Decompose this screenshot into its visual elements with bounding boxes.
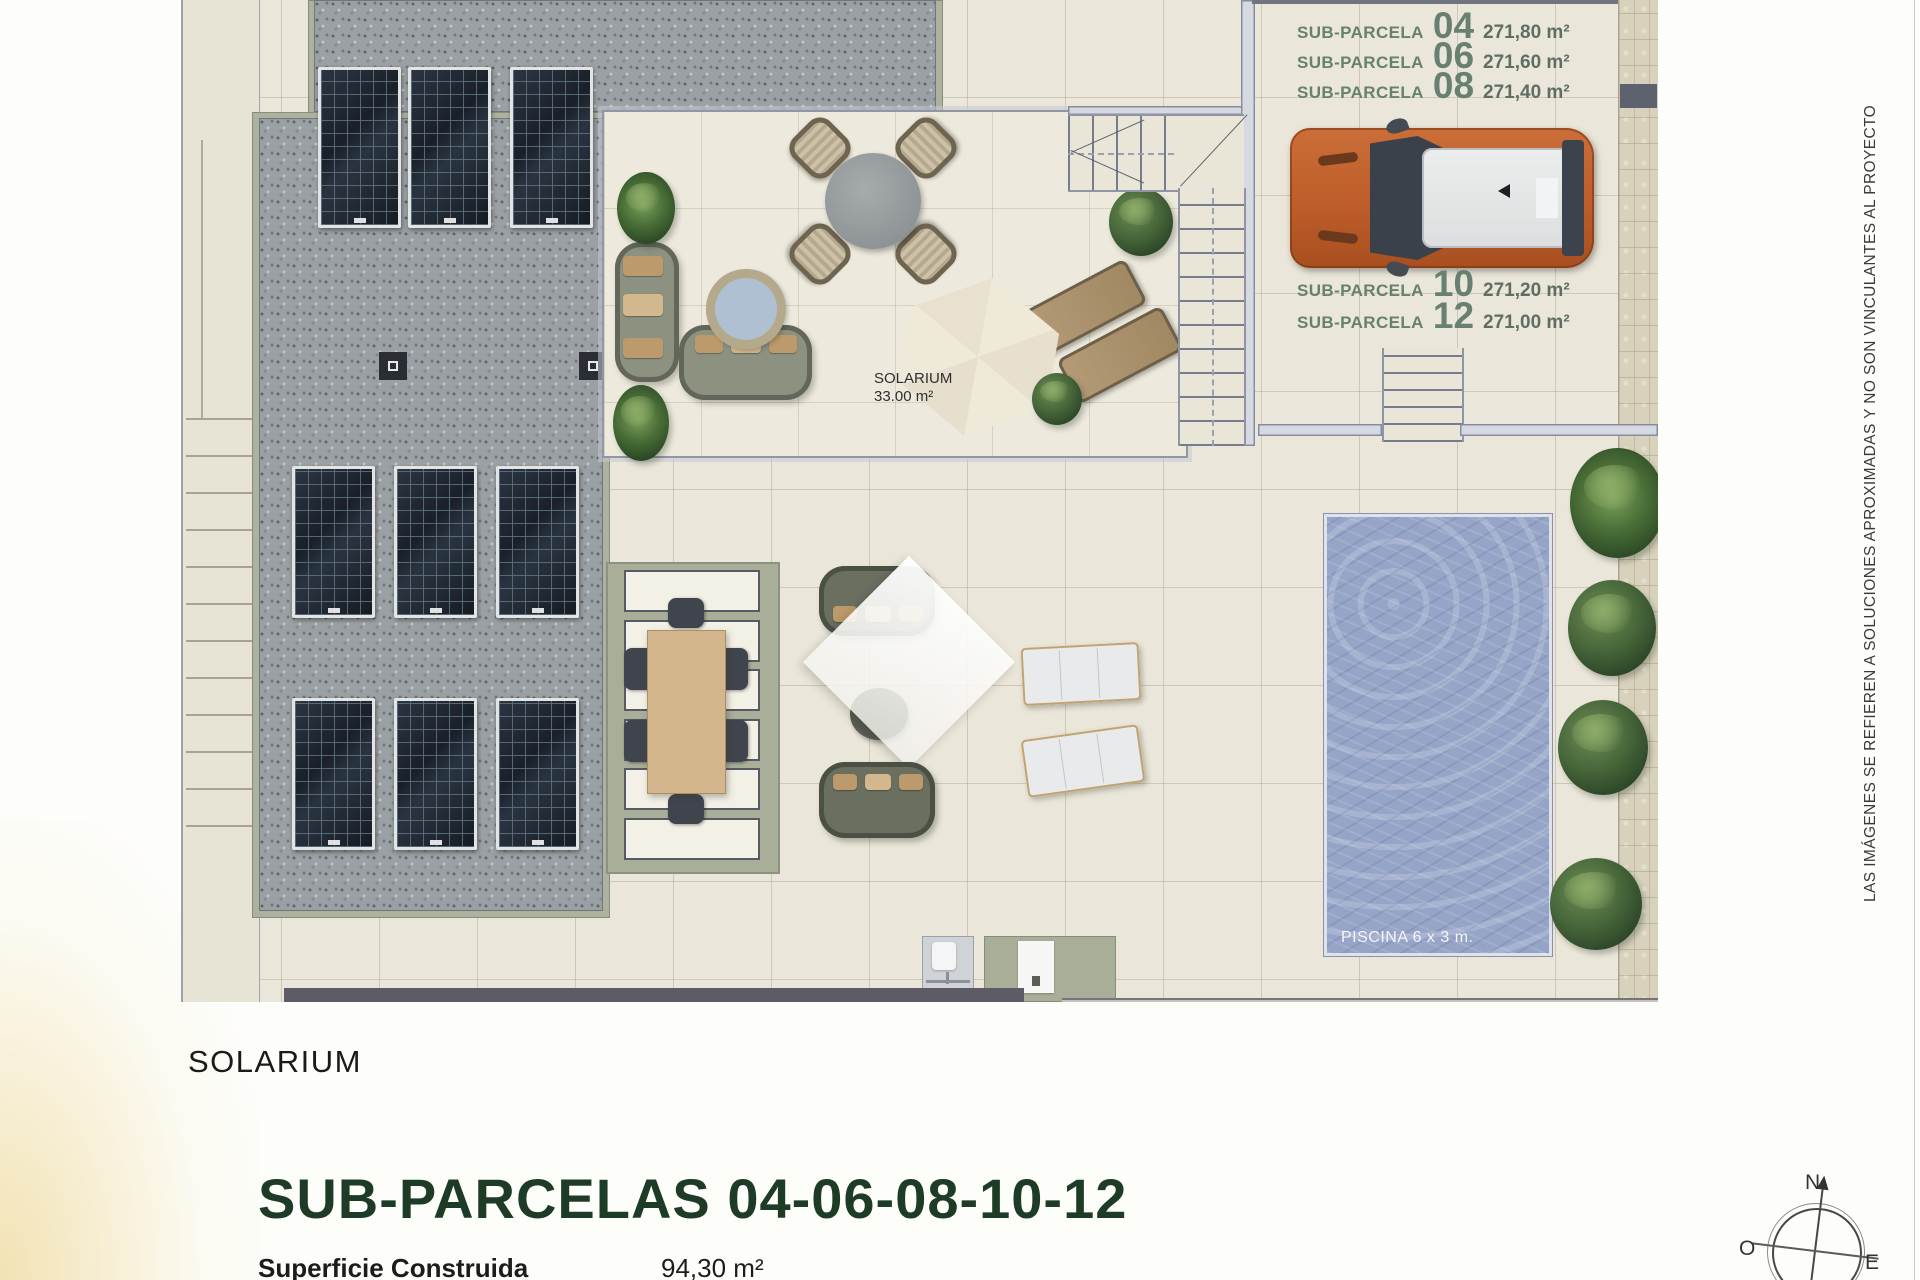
garden-bush	[1550, 858, 1642, 950]
site-plan: SOLARIUM 33.00 m² SUB-PARCELA 04 271,80 …	[181, 0, 1658, 1002]
side-walkway-steps	[186, 418, 256, 858]
garden-bush	[1558, 700, 1648, 795]
plant	[617, 172, 675, 244]
parcel-area: 271,00 m²	[1483, 312, 1570, 334]
plant	[1109, 188, 1173, 256]
compass-cross	[1748, 1184, 1882, 1280]
garden-stair	[1382, 348, 1464, 442]
compass-rose: N O E	[1739, 1165, 1899, 1280]
dining-table	[647, 630, 726, 794]
parcel-area: 271,40 m²	[1483, 82, 1570, 104]
solar-panel	[408, 67, 491, 228]
solar-panel	[292, 466, 375, 618]
solarium-area-name: SOLARIUM	[874, 370, 952, 388]
page-edge-line	[1914, 0, 1915, 1280]
compass-west-label: O	[1739, 1237, 1755, 1261]
floor-name-label: SOLARIUM	[188, 1044, 362, 1080]
solar-panel	[318, 67, 401, 228]
plan-title: SUB-PARCELAS 04-06-08-10-12	[258, 1166, 1127, 1231]
parcel-area: 271,20 m²	[1483, 280, 1570, 302]
parcel-number: 08	[1433, 70, 1474, 101]
round-rug	[706, 269, 786, 349]
solar-panel	[510, 67, 593, 228]
dining-chair	[668, 794, 704, 824]
parcel-label: SUB-PARCELA	[1297, 313, 1424, 333]
boundary-wall-dark	[284, 988, 1024, 1002]
car-top-view	[1290, 128, 1594, 268]
solar-panel	[292, 698, 375, 850]
disclaimer-note: LAS IMÁGENES SE REFIEREN A SOLUCIONES AP…	[1862, 0, 1880, 902]
path-wall-block	[1620, 84, 1657, 108]
surface-built-label: Superficie Construida	[258, 1253, 528, 1280]
parcel-label: SUB-PARCELA	[1297, 281, 1424, 301]
boundary-wall-light	[1062, 998, 1658, 1002]
floor-plan-page: SOLARIUM 33.00 m² SUB-PARCELA 04 271,80 …	[0, 0, 1920, 1280]
plant	[613, 385, 669, 461]
sofa	[615, 242, 679, 382]
garden-bush	[1568, 580, 1656, 676]
solar-panel	[394, 698, 477, 850]
surface-built-value: 94,30 m²	[661, 1253, 764, 1280]
parcel-label: SUB-PARCELA	[1297, 83, 1424, 103]
pergola-slat	[624, 818, 760, 860]
side-walkway-wall	[201, 140, 203, 418]
solarium-area-size: 33.00 m²	[874, 388, 952, 406]
solarium-area-label: SOLARIUM 33.00 m²	[874, 370, 952, 406]
round-table	[825, 153, 921, 249]
swimming-pool: PISCINA 6 x 3 m.	[1324, 514, 1552, 956]
parcel-number: 12	[1433, 300, 1474, 331]
car-roof-arrow	[1498, 184, 1510, 198]
compass-north-label: N	[1805, 1171, 1820, 1195]
pool-lounger	[1021, 724, 1146, 798]
solar-panel	[496, 698, 579, 850]
palm-tree	[1570, 448, 1658, 558]
solar-panel	[394, 466, 477, 618]
utility-box	[922, 936, 974, 996]
roof-vent	[379, 352, 407, 380]
garden-wall	[1460, 424, 1658, 436]
parcel-row: SUB-PARCELA 12 271,00 m²	[1297, 300, 1570, 334]
pool-size-label: PISCINA 6 x 3 m.	[1341, 929, 1473, 947]
parking-top-wall	[1252, 0, 1658, 4]
car-rear-window	[1562, 140, 1584, 256]
plant	[1032, 373, 1082, 425]
car-roof-marker	[1536, 178, 1558, 218]
compass-east-label: E	[1865, 1251, 1879, 1275]
pool-lounger	[1021, 642, 1142, 706]
parcel-row: SUB-PARCELA 08 271,40 m²	[1297, 70, 1570, 104]
solar-panel	[496, 466, 579, 618]
lounge-sofa	[819, 762, 935, 838]
dining-chair	[668, 598, 704, 628]
garden-wall	[1258, 424, 1382, 436]
staircase-lower-flight	[1178, 188, 1246, 446]
